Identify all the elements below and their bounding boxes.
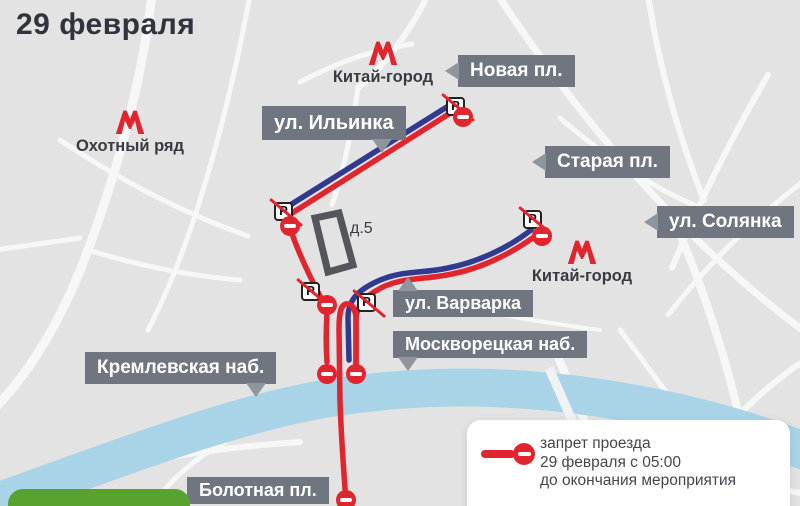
no-entry-icon bbox=[280, 216, 300, 236]
street-label-text: ул. Солянка bbox=[669, 211, 782, 232]
no-entry-bar bbox=[457, 115, 469, 119]
street-label-text: ул. Ильинка bbox=[274, 112, 394, 134]
street-label-bolotnaya-pl: Болотная пл. bbox=[187, 477, 329, 504]
building-d5-label: д.5 bbox=[350, 220, 373, 238]
metro-station-label: Китай-город bbox=[532, 267, 632, 285]
street-label-text: Старая пл. bbox=[557, 151, 658, 172]
no-entry-icon bbox=[532, 226, 552, 246]
street-label-text: ул. Варварка bbox=[405, 293, 521, 313]
label-pointer-left bbox=[445, 62, 459, 80]
label-pointer-left bbox=[644, 213, 658, 231]
no-entry-bar bbox=[321, 372, 333, 376]
page-title: 29 февраля bbox=[16, 8, 195, 42]
legend-card: запрет проезда 29 февраля с 05:00 до око… bbox=[467, 420, 790, 506]
metro-station-label: Китай-город bbox=[333, 68, 433, 86]
street-label-moskvoretskaya-nab: Москворецкая наб. bbox=[393, 331, 587, 358]
no-entry-bar bbox=[350, 372, 362, 376]
legend-line-3: до окончания мероприятия bbox=[540, 472, 736, 491]
closed-road-legend-icon bbox=[481, 443, 535, 465]
no-entry-bar bbox=[536, 234, 548, 238]
no-parking-icon: P bbox=[301, 282, 320, 301]
green-area-banner bbox=[8, 489, 190, 506]
no-entry-icon bbox=[513, 443, 535, 465]
no-entry-icon bbox=[453, 107, 473, 127]
metro-station-kitay-gorod-east: Китай-город bbox=[512, 239, 652, 286]
legend-line-2: 29 февраля с 05:00 bbox=[540, 454, 736, 473]
label-pointer-down bbox=[246, 383, 266, 397]
legend-line-1: запрет проезда bbox=[540, 435, 736, 454]
legend-text: запрет проезда 29 февраля с 05:00 до око… bbox=[540, 435, 736, 491]
street-label-solyanka: ул. Солянка bbox=[657, 206, 794, 238]
building-d5-outline bbox=[315, 213, 353, 272]
street-label-text: Кремлевская наб. bbox=[97, 357, 264, 378]
street-label-text: Болотная пл. bbox=[199, 480, 317, 500]
street-label-text: Новая пл. bbox=[470, 60, 563, 81]
street-label-kremlevskaya-nab: Кремлевская наб. bbox=[85, 352, 276, 384]
label-pointer-up bbox=[398, 277, 418, 291]
closed-left-strand-red bbox=[326, 312, 327, 362]
metro-station-label: Охотный ряд bbox=[76, 137, 184, 155]
no-entry-bar bbox=[340, 498, 352, 502]
street-label-staraya-pl: Старая пл. bbox=[545, 146, 670, 178]
no-entry-icon bbox=[317, 295, 337, 315]
label-pointer-down bbox=[372, 139, 392, 153]
no-entry-icon bbox=[336, 490, 356, 506]
street-label-novaya-pl: Новая пл. bbox=[458, 55, 575, 87]
label-pointer-left bbox=[532, 153, 546, 171]
no-parking-icon: P bbox=[357, 293, 376, 312]
street-label-ilyinka: ул. Ильинка bbox=[262, 106, 406, 140]
no-entry-icon bbox=[317, 364, 337, 384]
legend-red-road bbox=[481, 450, 515, 458]
no-entry-icon bbox=[346, 364, 366, 384]
label-pointer-down bbox=[398, 357, 418, 371]
metro-icon bbox=[368, 40, 398, 65]
metro-icon bbox=[115, 109, 145, 134]
street-label-text: Москворецкая наб. bbox=[405, 334, 575, 354]
no-entry-bar bbox=[518, 452, 531, 456]
metro-icon bbox=[567, 239, 597, 264]
metro-station-kitay-gorod-north: Китай-город bbox=[313, 40, 453, 87]
no-entry-bar bbox=[284, 224, 296, 228]
road-closure-map: 29 февраля Китай-город Охотный ряд Китай… bbox=[0, 0, 800, 506]
no-entry-bar bbox=[321, 303, 333, 307]
metro-station-okhotny-ryad: Охотный ряд bbox=[60, 109, 200, 156]
street-label-varvarka: ул. Варварка bbox=[393, 290, 533, 317]
